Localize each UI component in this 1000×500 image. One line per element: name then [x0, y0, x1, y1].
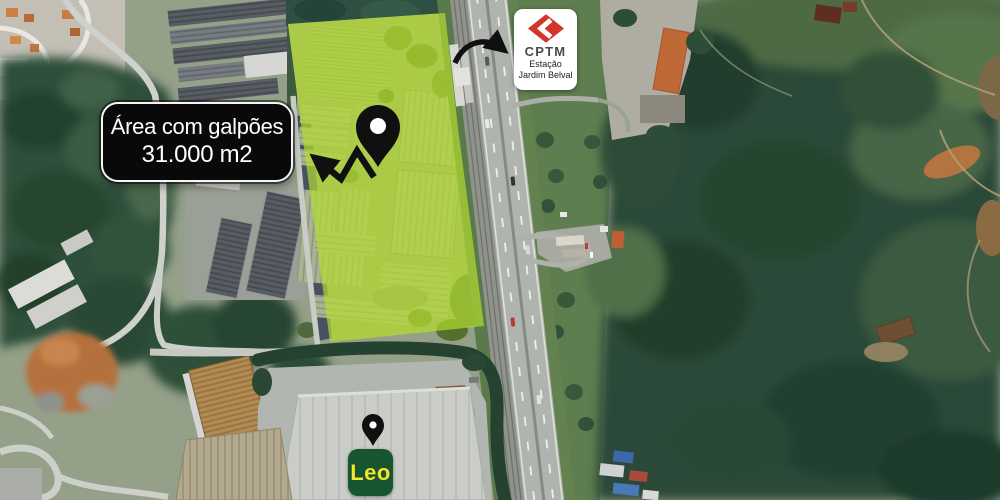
- map-canvas: Área com galpões 31.000 m2 CPTM Estação …: [0, 0, 1000, 500]
- cptm-title: CPTM: [525, 45, 567, 59]
- area-label: Área com galpões 31.000 m2: [101, 102, 293, 182]
- leo-logo: Leo: [348, 449, 393, 496]
- cptm-subtitle1: Estação: [529, 59, 562, 70]
- satellite-map: [0, 0, 1000, 500]
- area-label-line1: Área com galpões: [111, 114, 284, 140]
- cptm-subtitle2: Jardim Belval: [518, 70, 572, 81]
- dirt-clearing: [26, 332, 118, 412]
- leo-logo-text: Leo: [350, 460, 391, 486]
- cptm-station-badge: CPTM Estação Jardim Belval: [514, 9, 577, 90]
- area-label-line2: 31.000 m2: [142, 141, 253, 170]
- cptm-diamond-icon: [527, 13, 565, 44]
- gray-lot: [0, 468, 42, 500]
- industrial-block-mid: [185, 176, 306, 300]
